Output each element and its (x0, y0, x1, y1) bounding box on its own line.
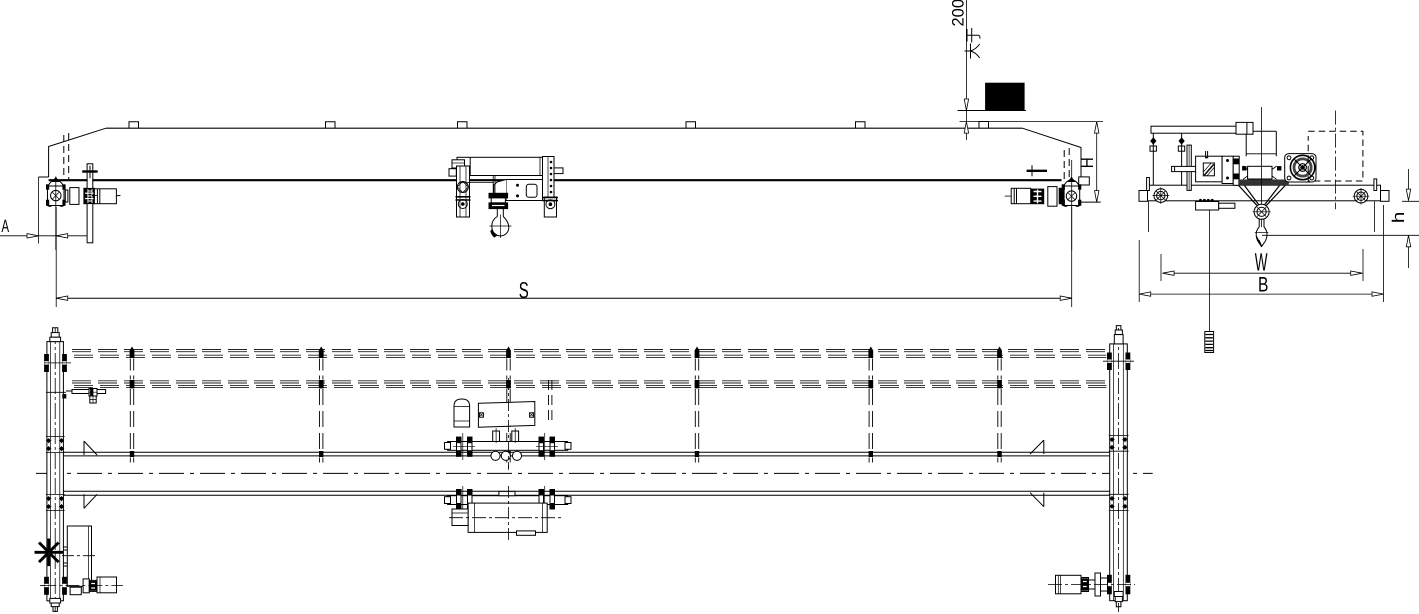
svg-text:A: A (2, 216, 10, 236)
svg-text:h: h (1389, 212, 1408, 224)
svg-text:B: B (1258, 273, 1268, 296)
svg-text:200: 200 (950, 0, 968, 27)
svg-text:H: H (1078, 157, 1097, 168)
svg-text:S: S (519, 277, 529, 303)
